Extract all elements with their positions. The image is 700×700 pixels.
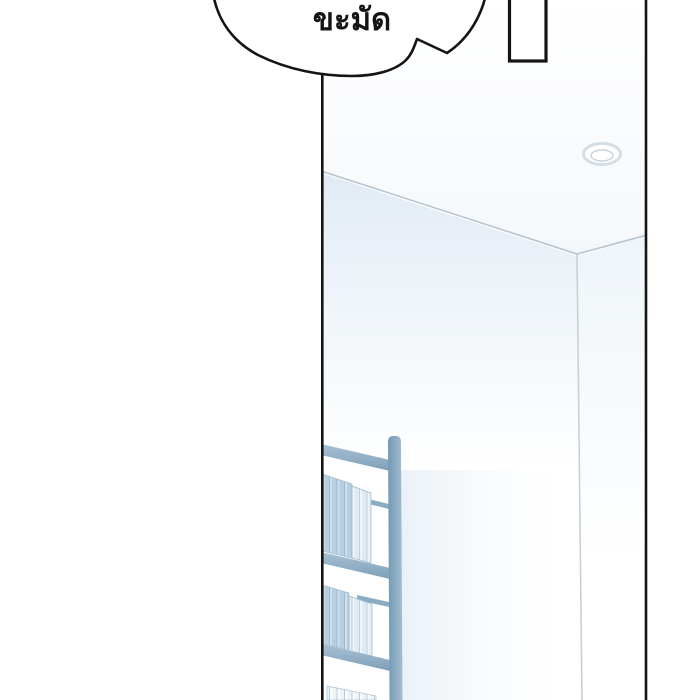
comic-panel-page: ขะมัด — [0, 0, 700, 700]
door-frame — [510, 0, 547, 61]
wall-right — [577, 236, 647, 700]
ceiling-light — [584, 144, 621, 165]
panel-artwork: ขะมัด — [0, 0, 700, 700]
background-wash — [400, 470, 578, 700]
speech-bubble-text: ขะมัด — [313, 2, 391, 38]
shelf-post — [388, 436, 403, 700]
